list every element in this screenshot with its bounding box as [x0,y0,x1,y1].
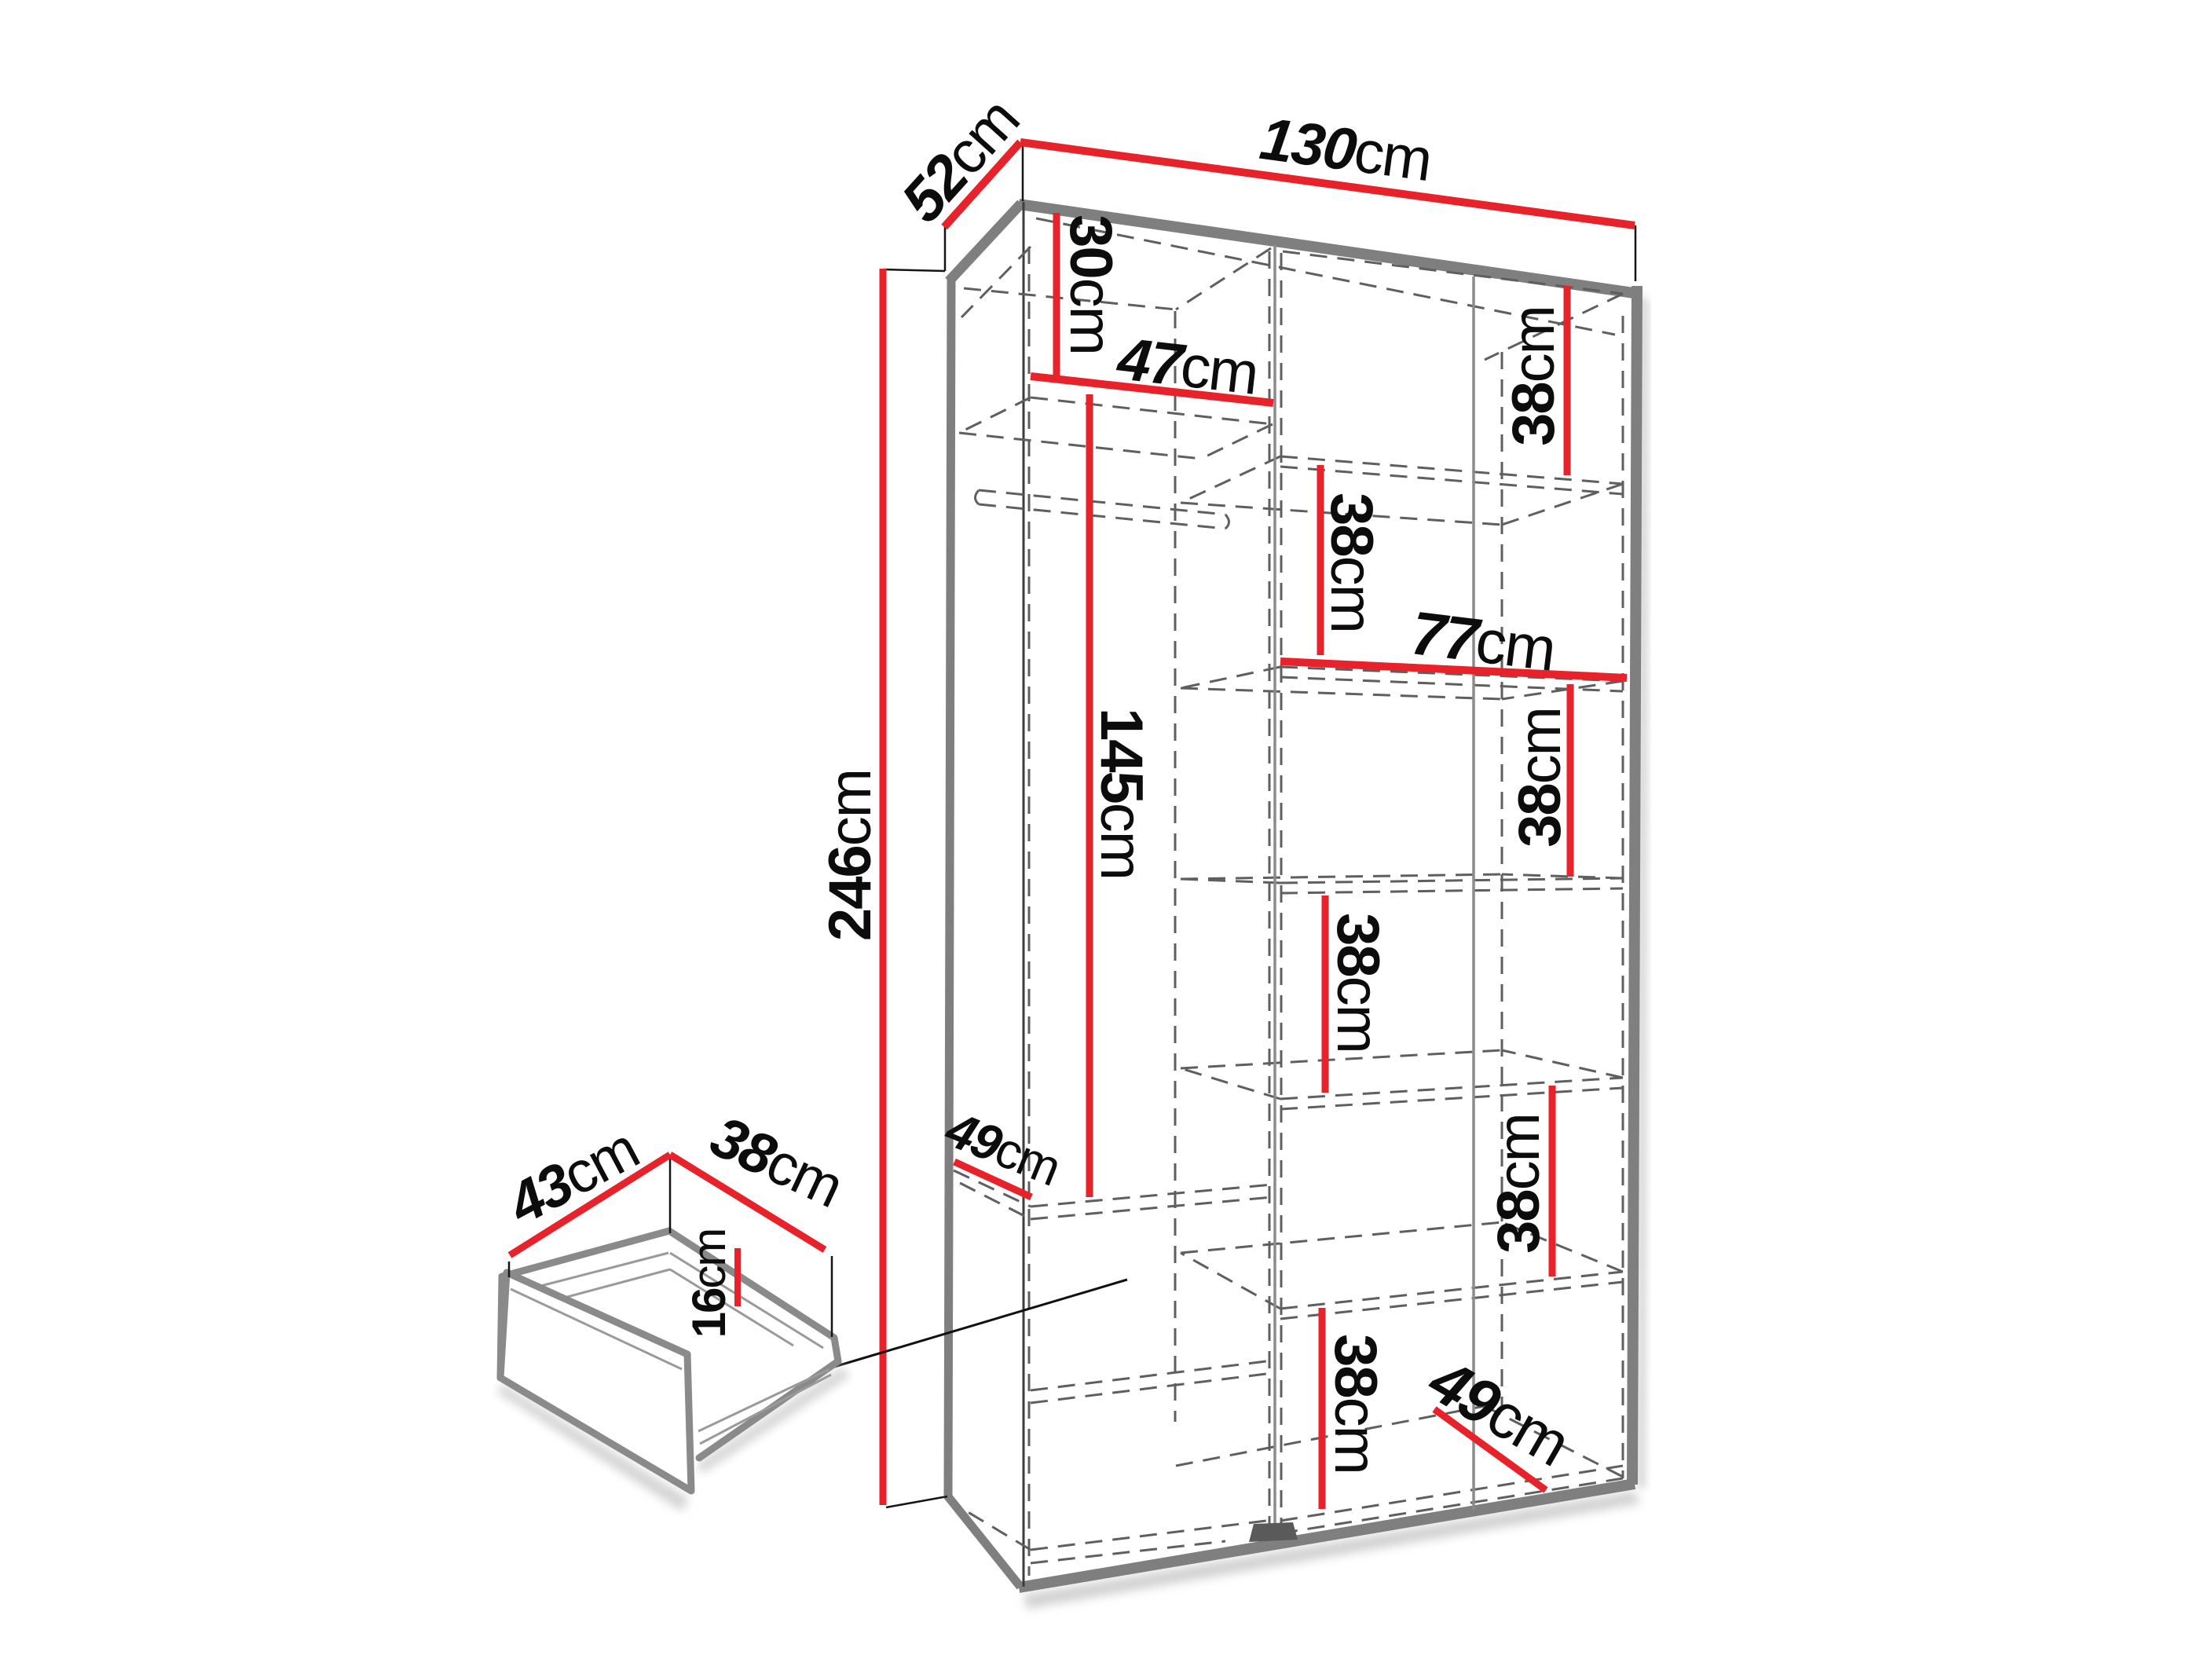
svg-text:38cm: 38cm [1507,708,1573,848]
svg-text:30cm: 30cm [1058,214,1125,354]
svg-text:16cm: 16cm [683,1229,735,1339]
svg-text:38cm: 38cm [1485,1114,1552,1254]
svg-text:246cm: 246cm [817,770,884,941]
svg-text:145cm: 145cm [1089,708,1155,879]
svg-text:38cm: 38cm [1319,493,1386,632]
svg-text:38cm: 38cm [1500,306,1567,446]
svg-text:38cm: 38cm [1323,1334,1390,1474]
svg-text:38cm: 38cm [1325,913,1392,1053]
